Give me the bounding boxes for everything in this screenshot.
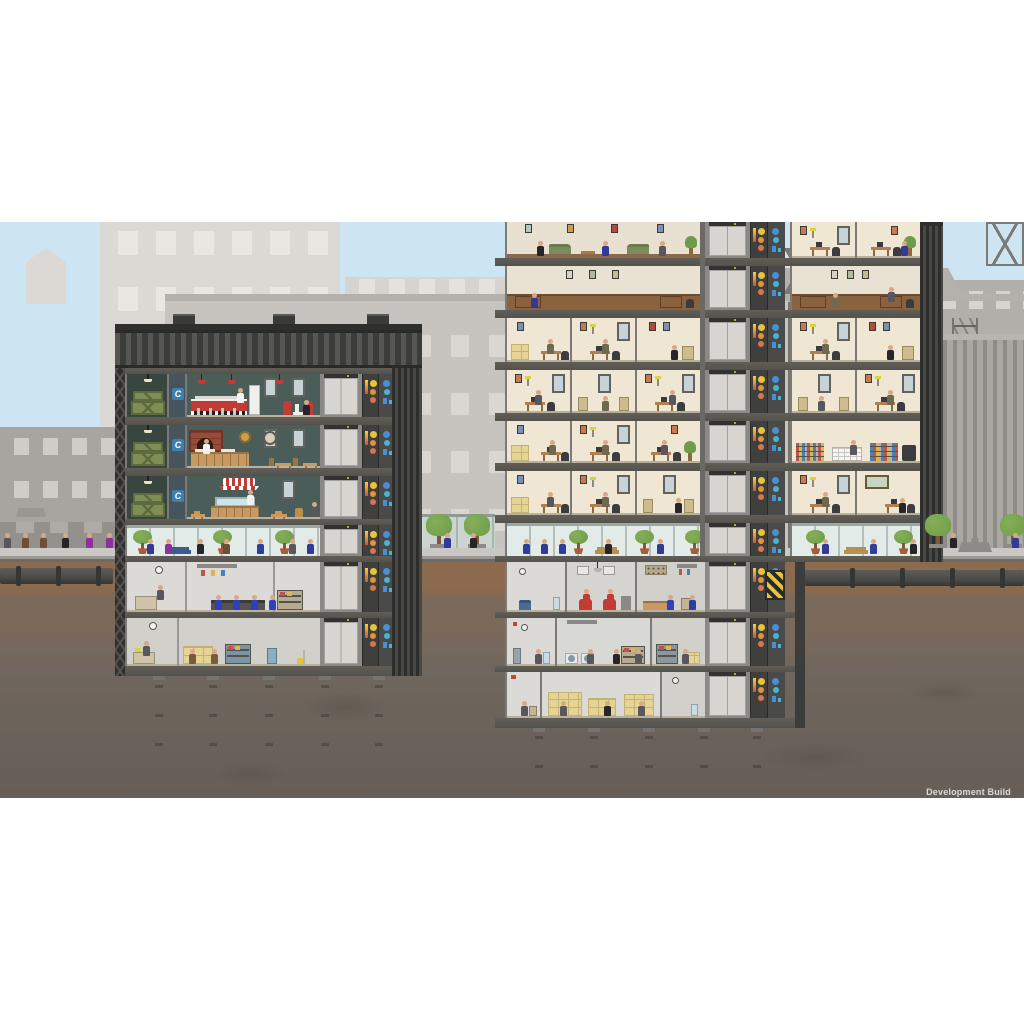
person[interactable] [523, 539, 530, 554]
person-part [638, 706, 645, 716]
pedestrian[interactable] [40, 533, 47, 548]
person[interactable] [689, 595, 696, 610]
pedestrian[interactable] [1012, 533, 1019, 548]
screenshot-canvas: CCC Development Build [0, 0, 1024, 1024]
person-part [583, 594, 590, 604]
person[interactable] [638, 701, 645, 716]
person-part [602, 246, 609, 256]
person[interactable] [251, 595, 258, 610]
person[interactable] [197, 539, 204, 554]
person[interactable] [657, 539, 664, 554]
person-part [307, 544, 314, 554]
person[interactable] [303, 400, 310, 415]
person-part [870, 544, 877, 554]
person[interactable] [189, 649, 196, 664]
person[interactable] [311, 502, 318, 517]
person-part [604, 706, 611, 716]
person[interactable] [822, 339, 829, 354]
person-part [531, 298, 538, 308]
person[interactable] [682, 649, 689, 664]
person-part [822, 497, 829, 507]
person[interactable] [818, 396, 825, 411]
person-part [86, 538, 93, 548]
person-part [559, 544, 566, 554]
person-part [635, 654, 642, 664]
person-part [269, 600, 276, 610]
person[interactable] [870, 539, 877, 554]
person[interactable] [559, 539, 566, 554]
person[interactable] [888, 287, 895, 302]
person[interactable] [602, 241, 609, 256]
person-part [850, 445, 857, 455]
person[interactable] [613, 649, 620, 664]
person[interactable] [602, 492, 609, 507]
person[interactable] [143, 641, 150, 656]
person-part [689, 600, 696, 610]
person-part [197, 544, 204, 554]
person-part [602, 445, 609, 455]
person[interactable] [669, 390, 676, 405]
person-part [143, 646, 150, 656]
person-part [22, 538, 29, 548]
person-part [657, 544, 664, 554]
person-part [887, 395, 894, 405]
person-part [822, 544, 829, 554]
person[interactable] [560, 701, 567, 716]
game-viewport: CCC Development Build [0, 222, 1024, 798]
person-part [535, 654, 542, 664]
person[interactable] [215, 595, 222, 610]
pedestrian[interactable] [470, 533, 477, 548]
person-part [157, 590, 164, 600]
person-part [832, 298, 839, 308]
person-part [1012, 538, 1019, 548]
person-part [303, 405, 310, 415]
person-part [311, 507, 318, 517]
person[interactable] [887, 390, 894, 405]
person[interactable] [289, 539, 296, 554]
person[interactable] [147, 539, 154, 554]
person[interactable] [247, 490, 254, 505]
person[interactable] [607, 589, 614, 604]
person[interactable] [521, 701, 528, 716]
person[interactable] [541, 539, 548, 554]
person-part [40, 538, 47, 548]
person[interactable] [661, 440, 668, 455]
person[interactable] [269, 595, 276, 610]
person-part [535, 395, 542, 405]
pedestrian[interactable] [22, 533, 29, 548]
development-build-watermark: Development Build [926, 787, 1011, 797]
person[interactable] [307, 539, 314, 554]
street-tree [923, 514, 953, 548]
pedestrian[interactable] [4, 533, 11, 548]
person-part [661, 445, 668, 455]
person[interactable] [223, 539, 230, 554]
person-part [523, 544, 530, 554]
person-part [899, 503, 906, 513]
person-part [887, 350, 894, 360]
person[interactable] [211, 649, 218, 664]
person[interactable] [535, 390, 542, 405]
person-part [901, 246, 908, 256]
person-part [541, 544, 548, 554]
person-part [247, 495, 254, 505]
person-part [669, 395, 676, 405]
person[interactable] [822, 539, 829, 554]
person[interactable] [635, 649, 642, 664]
person[interactable] [899, 498, 906, 513]
person-part [537, 246, 544, 256]
person-part [203, 444, 210, 454]
person-part [223, 544, 230, 554]
furniture [437, 536, 441, 544]
street-tree [998, 514, 1024, 548]
person-part [4, 538, 11, 548]
person[interactable] [602, 440, 609, 455]
person-part [289, 544, 296, 554]
person-part [215, 600, 222, 610]
person[interactable] [537, 241, 544, 256]
person[interactable] [233, 595, 240, 610]
person-part [950, 538, 957, 548]
person-part [605, 544, 612, 554]
person-part [602, 497, 609, 507]
person[interactable] [237, 388, 244, 403]
person-part [682, 654, 689, 664]
furniture [464, 514, 490, 536]
pedestrian[interactable] [62, 533, 69, 548]
person[interactable] [910, 539, 917, 554]
pedestrian[interactable] [106, 533, 113, 548]
person-part [444, 538, 451, 548]
person-part [587, 654, 594, 664]
person[interactable] [583, 589, 590, 604]
person-part [237, 393, 244, 403]
person-part [470, 538, 477, 548]
person-part [547, 497, 554, 507]
person[interactable] [675, 498, 682, 513]
furniture [936, 536, 940, 544]
person[interactable] [604, 701, 611, 716]
person[interactable] [531, 293, 538, 308]
pedestrian[interactable] [444, 533, 451, 548]
person-part [822, 344, 829, 354]
person[interactable] [549, 440, 556, 455]
person-part [602, 401, 609, 411]
person[interactable] [605, 539, 612, 554]
person-part [521, 706, 528, 716]
person-part [189, 654, 196, 664]
person[interactable] [887, 345, 894, 360]
person[interactable] [547, 492, 554, 507]
person[interactable] [203, 439, 210, 454]
person-part [671, 350, 678, 360]
person[interactable] [165, 539, 172, 554]
person[interactable] [157, 585, 164, 600]
person[interactable] [667, 595, 674, 610]
person-part [602, 344, 609, 354]
person-part [211, 654, 218, 664]
person-part [818, 401, 825, 411]
person[interactable] [535, 649, 542, 664]
person-part [257, 544, 264, 554]
person-part [675, 503, 682, 513]
person-part [233, 600, 240, 610]
person[interactable] [602, 339, 609, 354]
person[interactable] [602, 396, 609, 411]
foreground-layer [0, 222, 1024, 798]
person[interactable] [901, 241, 908, 256]
furniture [925, 514, 951, 536]
person-part [888, 292, 895, 302]
person-part [560, 706, 567, 716]
person-part [549, 445, 556, 455]
pedestrian[interactable] [86, 533, 93, 548]
person-part [613, 654, 620, 664]
person-part [607, 594, 614, 604]
pedestrian[interactable] [950, 533, 957, 548]
person[interactable] [832, 293, 839, 308]
person[interactable] [850, 440, 857, 455]
furniture [929, 544, 947, 548]
street-tree [462, 514, 492, 548]
person-part [910, 544, 917, 554]
person-part [62, 538, 69, 548]
person[interactable] [671, 345, 678, 360]
person-part [667, 600, 674, 610]
person[interactable] [257, 539, 264, 554]
person[interactable] [547, 339, 554, 354]
person[interactable] [659, 241, 666, 256]
person-part [547, 344, 554, 354]
person-part [147, 544, 154, 554]
person-part [251, 600, 258, 610]
person-part [106, 538, 113, 548]
person-part [165, 544, 172, 554]
person[interactable] [587, 649, 594, 664]
person[interactable] [822, 492, 829, 507]
person-part [659, 246, 666, 256]
